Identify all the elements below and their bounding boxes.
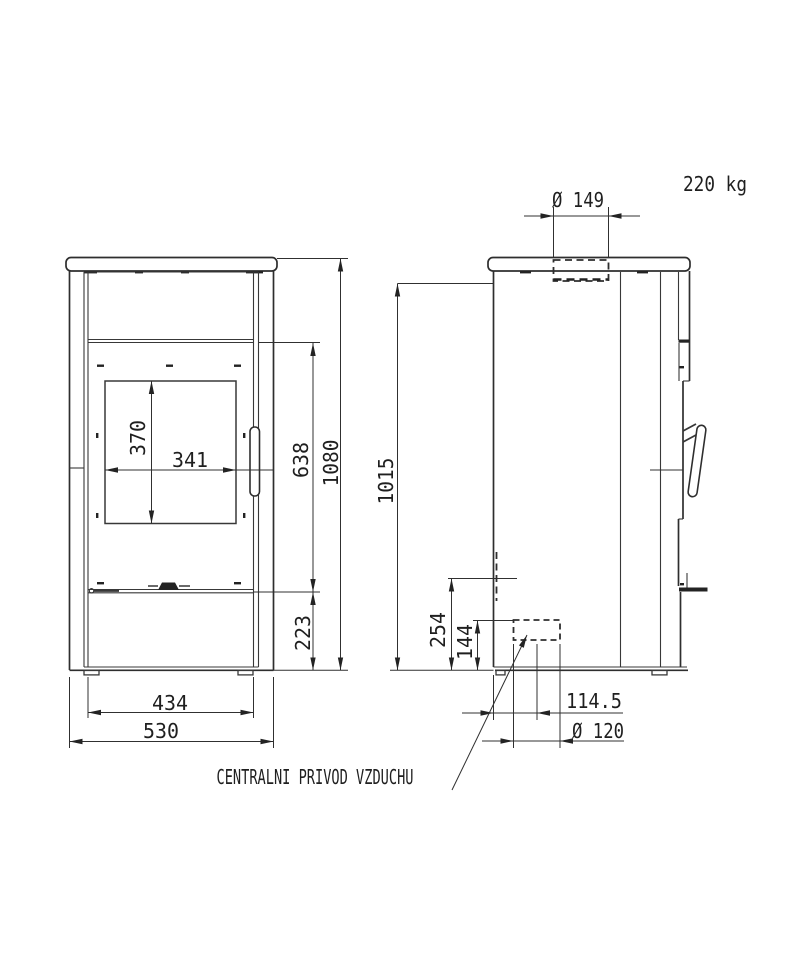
weight-label: 220 kg: [683, 172, 747, 196]
dim-base-height: 223: [291, 615, 315, 651]
door-handle-side: [688, 425, 707, 498]
front-dimensions: 370 341 638 223 1080 434: [70, 259, 349, 749]
technical-drawing: 370 341 638 223 1080 434: [0, 0, 800, 960]
front-view: 370 341 638 223 1080 434: [66, 258, 348, 749]
dim-overall-width: 530: [143, 719, 179, 743]
central-air-inlet-hidden: [514, 620, 561, 640]
front-top-plate: [66, 258, 277, 272]
stove-dimension-drawing: 370 341 638 223 1080 434: [0, 0, 800, 960]
door-glass-window: [105, 381, 236, 524]
dim-glass-width: 341: [172, 448, 208, 472]
dim-height-to-top: 1015: [374, 458, 398, 505]
central-air-label: CENTRALNI PRIVOD VZDUCHU: [217, 765, 414, 789]
dim-air-duct-height: 254: [426, 612, 450, 648]
door-latch: [158, 583, 179, 591]
door-handle-front: [250, 427, 260, 496]
ash-lever-side: [679, 588, 708, 592]
dim-overall-height: 1080: [319, 440, 343, 487]
dim-glass-height: 370: [126, 420, 150, 456]
dim-flue-diameter: Ø 149: [552, 188, 604, 212]
side-dimensions: Ø 149 1015 254 144 114.5: [374, 188, 640, 748]
dim-air-inlet-offset: 114.5: [566, 689, 622, 713]
dim-body-width: 434: [152, 691, 188, 715]
dim-air-inlet-height: 144: [453, 624, 477, 660]
dim-firebox-top-height: 638: [289, 442, 313, 478]
side-view: Ø 149 1015 254 144 114.5: [374, 188, 708, 748]
dim-air-inlet-diameter: Ø 120: [572, 719, 624, 743]
